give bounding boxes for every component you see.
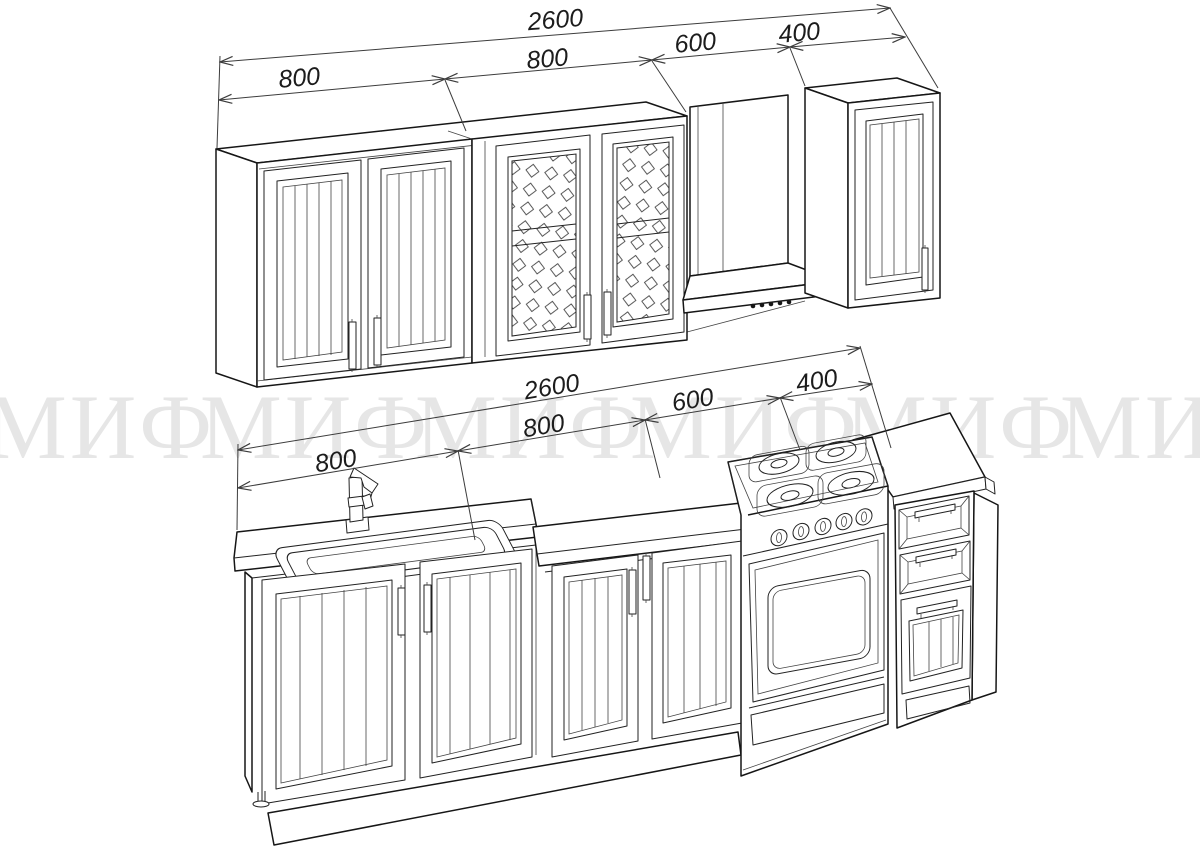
extension-line xyxy=(217,56,220,148)
door-handle xyxy=(349,322,356,369)
door-handle xyxy=(922,248,928,290)
base-cabinet-800 xyxy=(533,503,748,757)
door-handle xyxy=(584,295,591,339)
dim-label-top-800b: 800 xyxy=(525,43,569,75)
dimension-line-600 xyxy=(652,47,790,60)
countertop-end-cap xyxy=(985,477,995,494)
extension-line xyxy=(890,8,938,88)
door-handle xyxy=(629,570,636,614)
cabinet-side-face xyxy=(972,493,998,700)
dim-label-top-600: 600 xyxy=(673,27,717,59)
kitchen-technical-drawing: МИФ МИФ МИФ МИФ МИФ МИФ xyxy=(0,0,1200,848)
door-handle xyxy=(424,585,431,632)
cabinet-side-face xyxy=(245,572,252,792)
oven-window xyxy=(768,569,870,676)
sink-base-cabinet-800 xyxy=(234,468,538,807)
wall-cabinet-400 xyxy=(805,78,940,308)
cabinet-door xyxy=(264,160,361,380)
dimension-line-800 xyxy=(219,79,445,100)
gas-stove-600 xyxy=(728,430,888,776)
door-handle xyxy=(374,318,381,365)
door-handle xyxy=(643,556,650,600)
dim-label-top-800a: 800 xyxy=(277,62,321,94)
watermark-text: МИФ xyxy=(1060,376,1200,478)
door-handle xyxy=(604,292,611,335)
glass-lattice xyxy=(617,142,669,322)
hood-chimney xyxy=(690,95,788,276)
leg-foot xyxy=(253,801,269,807)
door-handle xyxy=(398,588,405,635)
extension-line xyxy=(652,61,686,112)
dim-label-top-overall: 2600 xyxy=(526,4,585,36)
wall-cabinets-row xyxy=(216,78,940,387)
kitchen-elevation-drawing-page: МИФ МИФ МИФ МИФ МИФ МИФ xyxy=(0,0,1200,848)
watermark-text: МИФ xyxy=(0,376,215,478)
extension-line xyxy=(790,48,805,86)
cabinet-side-face xyxy=(805,88,848,308)
dim-label-top-400: 400 xyxy=(777,17,821,49)
cabinet-door xyxy=(368,148,464,368)
wall-cabinet-side-face xyxy=(216,149,257,387)
wall-cabinet-800-glass xyxy=(472,116,687,363)
